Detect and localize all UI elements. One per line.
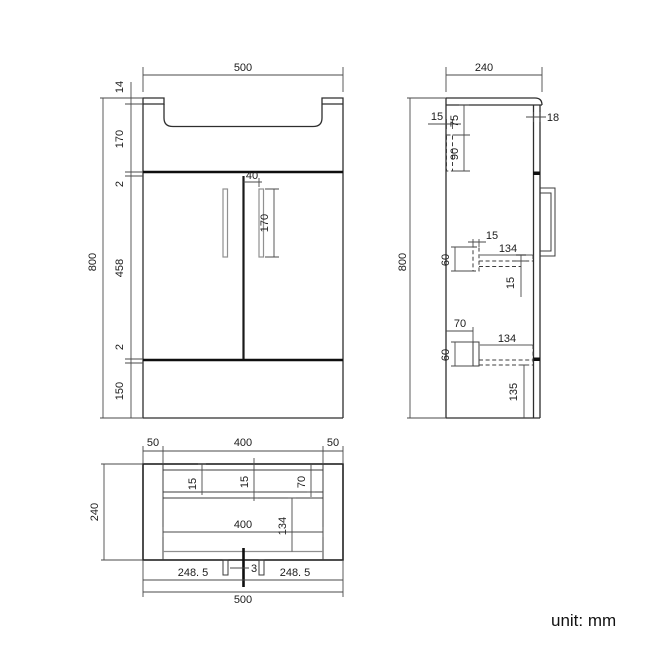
plan-view-dimensions: 50 400 50 240 15 15 70 400 134 3 248. 5 … bbox=[89, 437, 343, 606]
dim-side-bottom-clearance: 135 bbox=[508, 383, 520, 401]
dim-side-upper-bracket-width: 15 bbox=[486, 230, 498, 242]
unit-note: unit: mm bbox=[551, 611, 616, 630]
front-view-dimensions: 500 800 14 170 2 458 2 150 40 170 bbox=[87, 62, 343, 418]
front-right-side-and-rim bbox=[322, 98, 343, 418]
dim-plan-back-panel-thickness: 15 bbox=[187, 478, 199, 490]
dim-plan-overall-depth: 240 bbox=[89, 503, 101, 521]
dim-plan-door-gap: 3 bbox=[251, 563, 257, 575]
dim-side-lower-shelf-offset: 70 bbox=[454, 318, 466, 330]
basin-bowl-profile bbox=[164, 104, 322, 127]
plan-right-handle-tab bbox=[259, 560, 264, 575]
dim-side-upper-shelf-depth: 134 bbox=[499, 243, 517, 255]
dim-plan-side-panel-right: 50 bbox=[327, 437, 339, 449]
dim-side-worktop-to-rail: 75 bbox=[449, 115, 461, 127]
dim-plan-door-right-width: 248. 5 bbox=[280, 567, 311, 579]
side-front-door-edge bbox=[534, 105, 541, 418]
dim-plan-inner-width: 400 bbox=[234, 519, 252, 531]
front-view-outline bbox=[143, 98, 343, 418]
plan-view: 50 400 50 240 15 15 70 400 134 3 248. 5 … bbox=[89, 437, 343, 606]
dim-side-door-thickness: 18 bbox=[547, 112, 559, 124]
dim-plan-opening-width: 400 bbox=[234, 437, 252, 449]
technical-drawing-page: 500 800 14 170 2 458 2 150 40 170 bbox=[0, 0, 650, 650]
dim-plan-overall-width: 500 bbox=[234, 594, 252, 606]
dim-front-top-lip: 14 bbox=[114, 81, 126, 93]
front-view: 500 800 14 170 2 458 2 150 40 170 bbox=[87, 62, 343, 418]
left-door-handle bbox=[223, 189, 228, 257]
side-door-handle bbox=[540, 188, 555, 256]
side-view-outline bbox=[446, 98, 555, 418]
dim-side-wall-rail-thickness: 15 bbox=[431, 111, 443, 123]
dim-side-lower-bracket-height: 60 bbox=[440, 349, 452, 361]
dim-front-gap-top: 2 bbox=[114, 181, 126, 187]
dim-front-overall-height: 800 bbox=[87, 253, 99, 271]
dim-front-handle-length: 170 bbox=[259, 214, 271, 232]
dim-plan-bowl-depth: 134 bbox=[277, 517, 289, 535]
dim-front-door-height: 458 bbox=[114, 259, 126, 277]
dim-plan-side-panel-left: 50 bbox=[147, 437, 159, 449]
door-top-joint-mark bbox=[533, 172, 540, 176]
dim-side-overall-depth: 240 bbox=[475, 62, 493, 74]
dim-side-overall-height: 800 bbox=[397, 253, 409, 271]
lower-shelf-hidden-lines bbox=[479, 345, 533, 365]
dim-front-handle-offset: 40 bbox=[246, 170, 258, 182]
dim-front-overall-width: 500 bbox=[234, 62, 252, 74]
dim-side-wall-rail-height: 90 bbox=[449, 148, 461, 160]
dim-plan-ledge-depth: 70 bbox=[296, 476, 308, 488]
dim-front-gap-bottom: 2 bbox=[114, 344, 126, 350]
plan-left-handle-tab bbox=[223, 560, 228, 575]
plan-rail-lines bbox=[163, 492, 323, 498]
upper-shelf-bracket-hidden bbox=[473, 247, 479, 271]
front-left-side-and-rim bbox=[143, 98, 164, 418]
dim-plan-rail-thickness: 15 bbox=[239, 476, 251, 488]
dim-plan-door-left-width: 248. 5 bbox=[178, 567, 209, 579]
vanity-unit-drawing: 500 800 14 170 2 458 2 150 40 170 bbox=[0, 0, 650, 650]
lower-shelf-bracket bbox=[473, 342, 479, 366]
side-view: 240 800 15 18 75 90 15 134 60 15 70 134 … bbox=[397, 62, 559, 418]
dim-side-lower-shelf-depth: 134 bbox=[498, 333, 516, 345]
side-view-dimensions: 240 800 15 18 75 90 15 134 60 15 70 134 … bbox=[397, 62, 559, 418]
dim-side-upper-shelf-thickness: 15 bbox=[505, 277, 517, 289]
dim-side-upper-bracket-height: 60 bbox=[440, 254, 452, 266]
dim-front-plinth-height: 150 bbox=[114, 382, 126, 400]
door-bottom-joint-mark bbox=[533, 358, 540, 362]
dim-front-basin-section: 170 bbox=[114, 130, 126, 148]
worktop-section bbox=[446, 98, 542, 105]
